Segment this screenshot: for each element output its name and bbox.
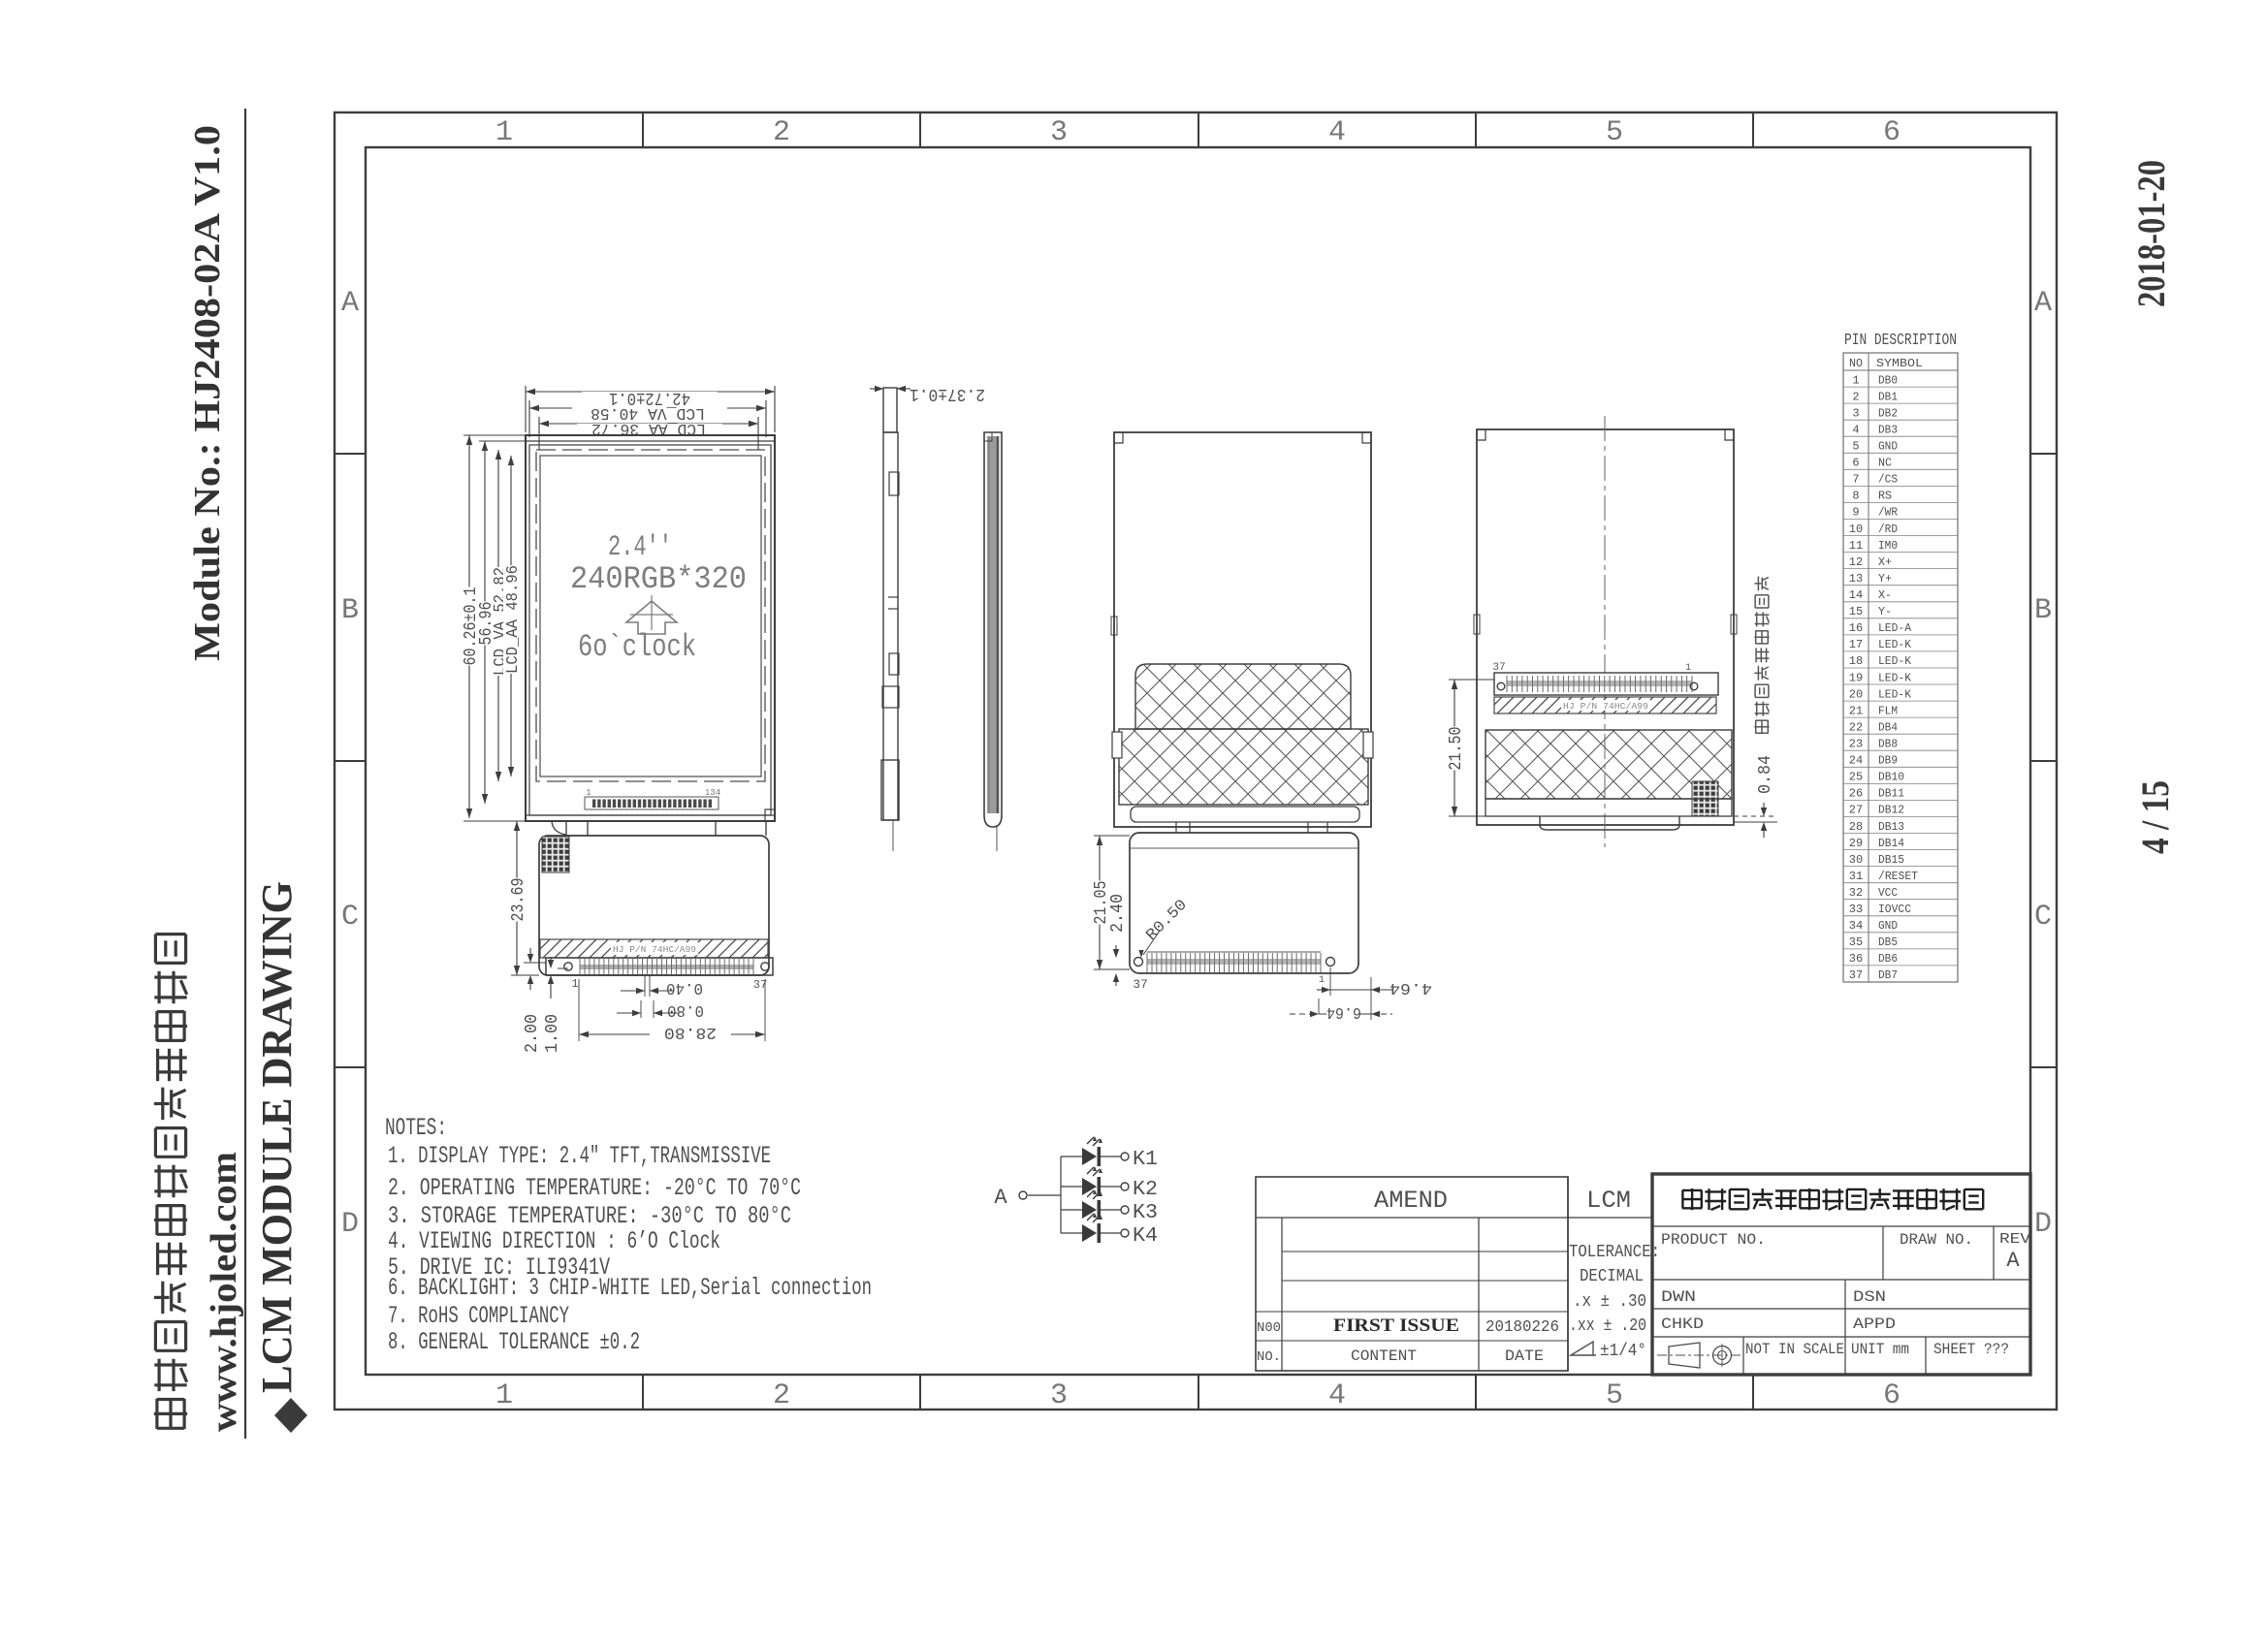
- svg-text:21.50: 21.50: [1447, 727, 1466, 771]
- svg-text:PRODUCT NO.: PRODUCT NO.: [1661, 1231, 1766, 1249]
- svg-text:NOTES:: NOTES:: [385, 1114, 447, 1142]
- svg-text:23.69: 23.69: [509, 878, 528, 922]
- svg-text:37: 37: [1492, 662, 1505, 674]
- svg-text:2: 2: [1852, 390, 1859, 403]
- svg-text:NO.: NO.: [1257, 1349, 1281, 1365]
- svg-text:18: 18: [1849, 654, 1863, 668]
- svg-text:4. VIEWING DIRECTION : 6’O Cl: 4. VIEWING DIRECTION : 6’O Clock: [388, 1227, 720, 1255]
- svg-text:LED-K: LED-K: [1878, 687, 1912, 701]
- svg-text:4: 4: [1852, 424, 1859, 437]
- svg-text:DB10: DB10: [1878, 771, 1904, 784]
- svg-text:23: 23: [1849, 738, 1863, 751]
- svg-text:D: D: [2034, 1208, 2052, 1241]
- svg-text:B: B: [2034, 594, 2052, 627]
- svg-text:15: 15: [1849, 605, 1863, 618]
- svg-text:4: 4: [1328, 1379, 1346, 1412]
- svg-text:33: 33: [1849, 903, 1863, 916]
- svg-text:28.80: 28.80: [664, 1023, 717, 1041]
- svg-text:AMEND: AMEND: [1374, 1187, 1448, 1215]
- svg-text:32: 32: [1849, 886, 1863, 900]
- svg-text:IOVCC: IOVCC: [1878, 903, 1911, 916]
- svg-text:6o`clock: 6o`clock: [578, 629, 696, 665]
- svg-text:D: D: [341, 1208, 359, 1241]
- svg-text:7. RoHS COMPLIANCY: 7. RoHS COMPLIANCY: [388, 1302, 569, 1330]
- svg-text:11: 11: [1849, 539, 1863, 553]
- svg-text:VCC: VCC: [1878, 886, 1898, 900]
- svg-text:6: 6: [1883, 1379, 1901, 1412]
- svg-text:20: 20: [1849, 687, 1863, 701]
- svg-text:7: 7: [1852, 473, 1859, 487]
- svg-text:LCD_AA 48.96: LCD_AA 48.96: [504, 565, 523, 674]
- svg-text:8. GENERAL TOLERANCE ±0.2: 8. GENERAL TOLERANCE ±0.2: [388, 1328, 640, 1356]
- svg-text:LED-A: LED-A: [1878, 621, 1912, 635]
- svg-text:DB11: DB11: [1878, 787, 1904, 801]
- svg-text:SHEET ???: SHEET ???: [1933, 1341, 2009, 1358]
- svg-text:X-: X-: [1878, 588, 1892, 602]
- svg-text:DB1: DB1: [1878, 390, 1898, 403]
- svg-text:2.37±0.1: 2.37±0.1: [910, 384, 985, 403]
- svg-text:GND: GND: [1878, 440, 1898, 454]
- svg-text:1. DISPLAY TYPE: 2.4″ TFT,TRAN: 1. DISPLAY TYPE: 2.4″ TFT,TRANSMISSIVE: [388, 1142, 771, 1170]
- svg-text:6. BACKLIGHT: 3 CHIP-WHITE LED: 6. BACKLIGHT: 3 CHIP-WHITE LED,Serial co…: [388, 1274, 872, 1302]
- svg-text:B: B: [341, 594, 359, 627]
- svg-text:DSN: DSN: [1853, 1288, 1886, 1306]
- svg-text:2: 2: [773, 1379, 790, 1412]
- svg-text:2.4′′: 2.4′′: [608, 531, 672, 564]
- svg-text:/WR: /WR: [1878, 506, 1898, 520]
- svg-text:DECIMAL: DECIMAL: [1580, 1267, 1644, 1286]
- svg-text:DB4: DB4: [1878, 720, 1898, 734]
- svg-text:26: 26: [1849, 787, 1863, 801]
- svg-text:K1: K1: [1133, 1149, 1158, 1171]
- svg-text:FIRST ISSUE: FIRST ISSUE: [1333, 1315, 1459, 1336]
- svg-text:8: 8: [1852, 490, 1859, 503]
- svg-text:2.40: 2.40: [1108, 894, 1128, 933]
- svg-text:LED-K: LED-K: [1878, 638, 1912, 651]
- svg-text:19: 19: [1849, 671, 1863, 684]
- svg-text:DB0: DB0: [1878, 373, 1898, 387]
- svg-text:DB7: DB7: [1878, 968, 1898, 982]
- svg-text:1: 1: [495, 1379, 513, 1412]
- svg-text:14: 14: [1849, 588, 1863, 602]
- svg-text:IM0: IM0: [1878, 539, 1898, 553]
- svg-text:37: 37: [1849, 968, 1863, 982]
- svg-text:4.64: 4.64: [1390, 978, 1432, 997]
- svg-text:30: 30: [1849, 853, 1863, 867]
- svg-text:DB15: DB15: [1878, 853, 1904, 867]
- svg-text:28: 28: [1849, 820, 1863, 834]
- svg-text:16: 16: [1849, 621, 1863, 635]
- svg-text:DB13: DB13: [1878, 820, 1904, 834]
- svg-text:NC: NC: [1878, 457, 1892, 470]
- svg-text:24: 24: [1849, 754, 1863, 768]
- svg-text:1: 1: [1319, 975, 1325, 986]
- svg-text:www.hjoled.com: www.hjoled.com: [204, 1152, 244, 1432]
- svg-text:DB3: DB3: [1878, 424, 1898, 437]
- svg-text:5: 5: [1606, 116, 1623, 149]
- svg-text:13: 13: [1849, 572, 1863, 586]
- svg-text:LCM: LCM: [1586, 1187, 1631, 1215]
- svg-text:A: A: [341, 287, 359, 320]
- svg-text:0.40: 0.40: [666, 978, 703, 997]
- svg-text:1: 1: [495, 116, 513, 149]
- svg-text:DB6: DB6: [1878, 952, 1898, 966]
- svg-text:DB14: DB14: [1878, 837, 1904, 850]
- svg-text:RS: RS: [1878, 490, 1892, 503]
- svg-text:6.64: 6.64: [1326, 1002, 1361, 1021]
- svg-text:CHKD: CHKD: [1661, 1315, 1704, 1333]
- svg-text:27: 27: [1849, 804, 1863, 817]
- svg-text:1: 1: [586, 788, 591, 798]
- svg-text:3: 3: [1050, 1379, 1068, 1412]
- svg-text:DB5: DB5: [1878, 935, 1898, 949]
- svg-text:FLM: FLM: [1878, 704, 1898, 717]
- svg-text:2.00: 2.00: [523, 1014, 542, 1053]
- svg-text:N00: N00: [1257, 1320, 1281, 1336]
- svg-text:22: 22: [1849, 720, 1863, 734]
- svg-text:0.80: 0.80: [667, 1000, 704, 1019]
- svg-text:1: 1: [1852, 373, 1859, 387]
- svg-text:±1/4°: ±1/4°: [1600, 1342, 1646, 1361]
- svg-text:DB8: DB8: [1878, 738, 1898, 751]
- svg-text:NOT IN SCALE: NOT IN SCALE: [1745, 1341, 1844, 1358]
- svg-text:35: 35: [1849, 935, 1863, 949]
- svg-text:DB2: DB2: [1878, 406, 1898, 420]
- svg-text:.xx ± .20: .xx ± .20: [1569, 1316, 1646, 1336]
- svg-text:/RD: /RD: [1878, 523, 1898, 536]
- svg-text:2. OPERATING TEMPERATURE: -2: 2. OPERATING TEMPERATURE: -20°C TO 70°C: [388, 1174, 801, 1202]
- svg-text:3: 3: [1852, 406, 1859, 420]
- svg-text:Y+: Y+: [1878, 572, 1892, 586]
- svg-text:36: 36: [1849, 952, 1863, 966]
- svg-text:34: 34: [1849, 919, 1863, 933]
- svg-text:A: A: [2006, 1249, 2020, 1273]
- svg-text:APPD: APPD: [1853, 1315, 1896, 1333]
- svg-text:PIN DESCRIPTION: PIN DESCRIPTION: [1844, 332, 1957, 350]
- svg-text:LED-K: LED-K: [1878, 654, 1912, 668]
- svg-text:.x ± .30: .x ± .30: [1573, 1292, 1646, 1312]
- svg-text:DWN: DWN: [1661, 1288, 1696, 1306]
- svg-text:1.00: 1.00: [543, 1014, 562, 1053]
- svg-text:UNIT mm: UNIT mm: [1851, 1341, 1909, 1358]
- svg-text:/RESET: /RESET: [1878, 870, 1918, 883]
- svg-text:2: 2: [773, 116, 790, 149]
- svg-text:5: 5: [1606, 1379, 1623, 1412]
- svg-text:4: 4: [1328, 116, 1346, 149]
- svg-text:4 / 15: 4 / 15: [2133, 780, 2177, 854]
- svg-text:Module No.: HJ2408-02A V1.0: Module No.: HJ2408-02A V1.0: [187, 125, 228, 661]
- svg-text:SYMBOL: SYMBOL: [1876, 357, 1923, 370]
- svg-text:K2: K2: [1133, 1179, 1158, 1201]
- svg-text:K3: K3: [1133, 1202, 1158, 1224]
- svg-text:K4: K4: [1133, 1225, 1158, 1248]
- svg-text:HJ P/N 74HC/A99: HJ P/N 74HC/A99: [613, 945, 696, 955]
- svg-text:1: 1: [571, 977, 578, 991]
- svg-text:6: 6: [1852, 457, 1859, 470]
- svg-text:CONTENT: CONTENT: [1351, 1347, 1417, 1365]
- svg-text:DB9: DB9: [1878, 754, 1898, 768]
- svg-text:C: C: [2034, 901, 2052, 934]
- svg-text:3: 3: [1050, 116, 1068, 149]
- svg-text:A: A: [994, 1186, 1007, 1210]
- svg-text:31: 31: [1849, 870, 1863, 883]
- svg-text:TOLERANCE:: TOLERANCE:: [1569, 1243, 1660, 1262]
- svg-text:29: 29: [1849, 837, 1863, 850]
- svg-text:REV: REV: [1999, 1231, 2030, 1248]
- svg-text:5: 5: [1852, 440, 1859, 454]
- svg-text:LED-K: LED-K: [1878, 671, 1912, 684]
- svg-text:A: A: [2034, 287, 2052, 320]
- svg-text:1: 1: [1685, 663, 1691, 674]
- svg-text:37: 37: [1133, 977, 1148, 992]
- svg-text:10: 10: [1849, 523, 1863, 536]
- svg-text:NO: NO: [1849, 357, 1863, 370]
- svg-text:2018-01-20: 2018-01-20: [2129, 160, 2173, 307]
- svg-text:17: 17: [1849, 638, 1863, 651]
- svg-text:21: 21: [1849, 704, 1863, 717]
- svg-text:6: 6: [1883, 116, 1901, 149]
- svg-text:LCM MODULE DRAWING: LCM MODULE DRAWING: [253, 881, 301, 1393]
- svg-text:DRAW NO.: DRAW NO.: [1900, 1231, 1973, 1249]
- svg-text:Y-: Y-: [1878, 605, 1892, 618]
- svg-text:DATE: DATE: [1505, 1347, 1544, 1365]
- svg-text:9: 9: [1852, 506, 1859, 520]
- svg-text:HJ P/N 74HC/A99: HJ P/N 74HC/A99: [1563, 702, 1648, 712]
- svg-text:20180226: 20180226: [1485, 1318, 1559, 1337]
- svg-text:134: 134: [705, 788, 720, 798]
- svg-text:GND: GND: [1878, 919, 1898, 933]
- svg-text:3. STORAGE TEMPERATURE: -30: 3. STORAGE TEMPERATURE: -30°C TO 80°C: [388, 1202, 791, 1230]
- svg-text:25: 25: [1849, 771, 1863, 784]
- svg-text:X+: X+: [1878, 555, 1892, 569]
- svg-text:240RGB*320: 240RGB*320: [570, 561, 747, 597]
- svg-text:C: C: [341, 901, 359, 934]
- svg-text:12: 12: [1849, 555, 1863, 569]
- svg-text:0.84: 0.84: [1756, 755, 1775, 794]
- svg-text:/CS: /CS: [1878, 473, 1898, 487]
- svg-text:DB12: DB12: [1878, 804, 1904, 817]
